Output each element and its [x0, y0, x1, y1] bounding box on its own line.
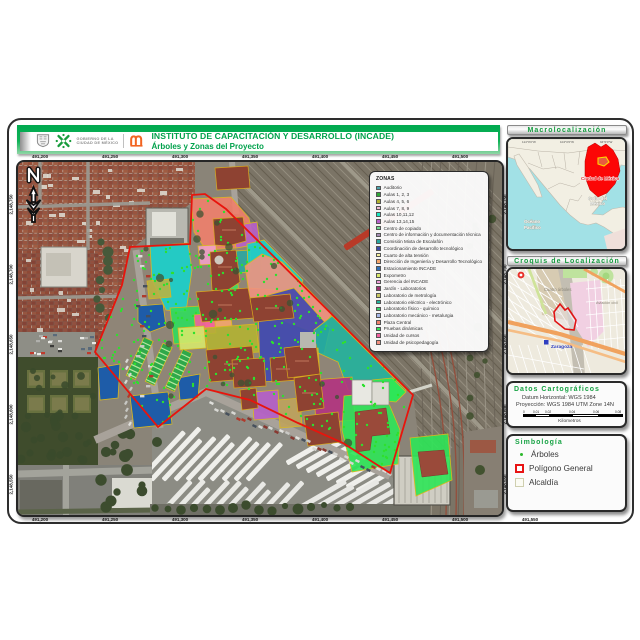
- svg-text:Aviación civil: Aviación civil: [596, 301, 618, 305]
- svg-text:Ciudad de México: Ciudad de México: [581, 176, 620, 181]
- svg-text:México: México: [590, 201, 605, 206]
- svg-text:Cuatro árboles: Cuatro árboles: [544, 287, 571, 292]
- svg-text:94°0'0"W: 94°0'0"W: [600, 140, 613, 144]
- svg-text:Zaragoza: Zaragoza: [551, 344, 572, 350]
- svg-text:104°0'0"W: 104°0'0"W: [560, 140, 574, 144]
- svg-text:Océano: Océano: [524, 219, 540, 224]
- svg-text:104°0'0"W: 104°0'0"W: [560, 248, 574, 251]
- svg-text:114°0'0"W: 114°0'0"W: [522, 248, 536, 251]
- svg-text:Pacífico: Pacífico: [524, 225, 541, 230]
- svg-text:114°0'0"W: 114°0'0"W: [522, 140, 536, 144]
- svg-text:94°0'0"W: 94°0'0"W: [600, 248, 613, 251]
